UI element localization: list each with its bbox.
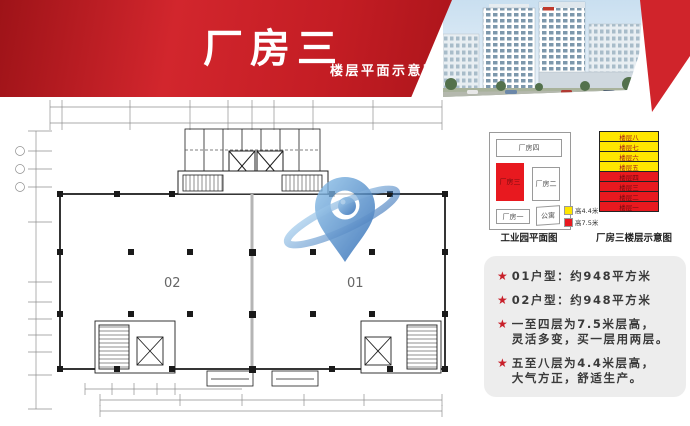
floor-row-1: 楼层一 (599, 201, 659, 212)
height-legend: 高4.4米 高7.5米 (564, 205, 598, 229)
floor-plan: 02 01 (12, 97, 464, 422)
unit-01-label: 01 (347, 276, 364, 291)
bullet-floors-1-4: ★ 一至四层为7.5米层高， 灵活多变，买一层用两层。 (497, 317, 678, 347)
bullet-floors-5-8: ★ 五至八层为4.4米层高， 大气方正，舒适生产。 (497, 356, 678, 386)
selling-points-box: ★ 01户型：约948平方米 ★ 02户型：约948平方米 ★ 一至四层为7.5… (484, 256, 686, 397)
stair-top-left (183, 175, 223, 191)
bullet-text: 一至四层为7.5米层高， 灵活多变，买一层用两层。 (512, 317, 669, 347)
unit-02-label: 02 (164, 276, 181, 291)
park-building-4: 厂房四 (496, 139, 562, 157)
star-icon: ★ (497, 356, 508, 386)
bullet-unit-01: ★ 01户型：约948平方米 (497, 269, 678, 284)
legend-item-red: 高7.5米 (564, 217, 598, 227)
entrance-porches (207, 371, 318, 386)
bullet-text: 五至八层为4.4米层高， 大气方正，舒适生产。 (512, 356, 655, 386)
bullet-unit-02: ★ 02户型：约948平方米 (497, 293, 678, 308)
bottom-dimension-lines (85, 383, 442, 417)
red-swatch-icon (564, 218, 573, 227)
building-rendering-photo (443, 0, 690, 118)
rooftop-sign (543, 7, 554, 11)
star-icon: ★ (497, 269, 508, 284)
park-building-1: 厂房一 (496, 209, 530, 224)
legend-label-44: 高4.4米 (575, 205, 598, 215)
star-icon: ★ (497, 293, 508, 308)
floor-stack-diagram: 楼层八 楼层七 楼层六 楼层五 楼层四 楼层三 楼层二 楼层一 (599, 131, 659, 212)
park-building-2: 厂房二 (532, 167, 560, 201)
core-bottom-left (95, 321, 175, 373)
grid-axis-bubbles (16, 147, 25, 192)
park-apartment: 公寓 (536, 205, 560, 226)
legend-label-75: 高7.5米 (575, 217, 598, 227)
stair-top-right (282, 175, 322, 191)
core-bottom-right (361, 321, 441, 373)
bullet-text: 01户型：约948平方米 (512, 269, 652, 284)
industrial-park-map: 厂房四 厂房三 厂房二 厂房一 公寓 (489, 132, 571, 230)
park-map-caption: 工业园平面图 (483, 230, 575, 244)
star-icon: ★ (497, 317, 508, 347)
title-banner: 厂房三 楼层平面示意图 (0, 0, 452, 97)
page-title: 厂房三 (203, 16, 344, 74)
page-subtitle: 楼层平面示意图 (330, 60, 439, 79)
bullet-text: 02户型：约948平方米 (512, 293, 652, 308)
tower-left (483, 8, 535, 92)
red-corner-ribbon (640, 0, 690, 112)
floor-stack-caption: 厂房三楼层示意图 (582, 230, 686, 244)
yellow-swatch-icon (564, 206, 573, 215)
flyer-page: 厂房三 楼层平面示意图 (0, 0, 690, 426)
top-dimension-lines (50, 100, 442, 130)
left-dimension-lines (16, 131, 53, 409)
legend-item-yellow: 高4.4米 (564, 205, 598, 215)
park-building-3-highlighted: 厂房三 (496, 163, 524, 201)
photo-scene (443, 0, 643, 98)
